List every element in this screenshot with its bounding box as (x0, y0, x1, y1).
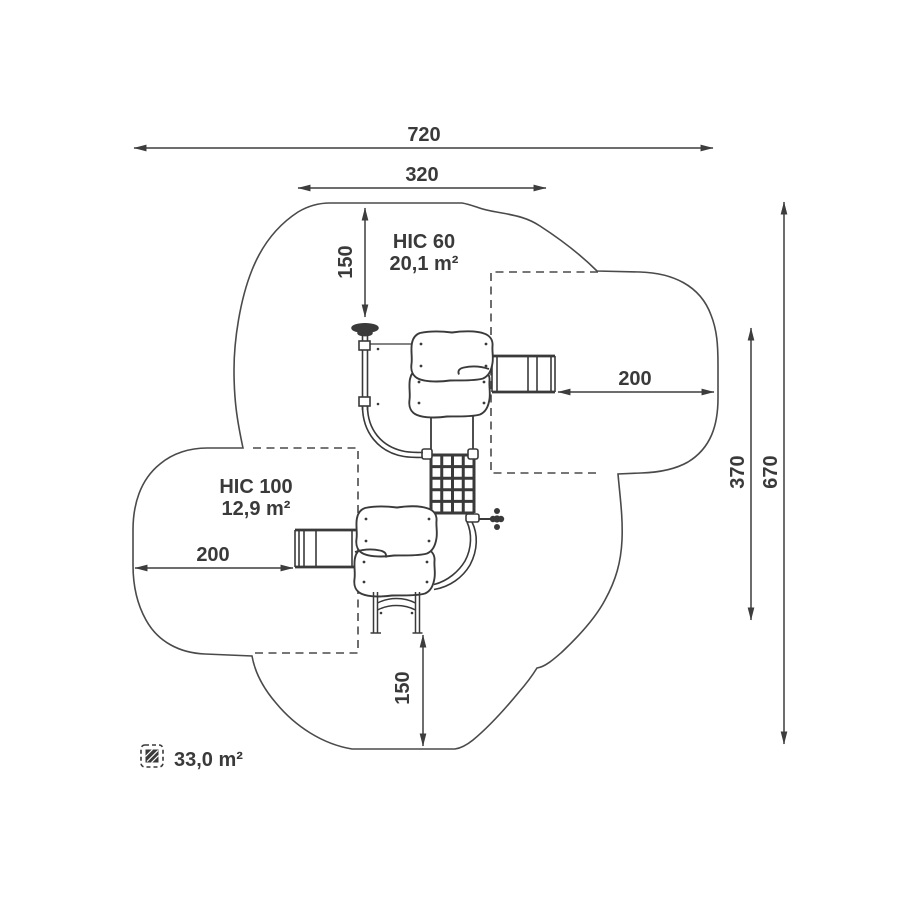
hic100-area: 12,9 m² (222, 498, 291, 520)
tower-net-posts (431, 416, 473, 450)
playground-plan-drawing: 720 320 150 200 370 670 200 150 HIC 60 2… (0, 0, 900, 900)
dim-label-left-clearance: 200 (196, 544, 229, 566)
dim-label-total-height: 670 (760, 455, 782, 488)
play-structure (295, 324, 555, 633)
hic60-label: HIC 60 (393, 231, 455, 253)
dim-label-bottom-clearance: 150 (392, 671, 414, 704)
technical-drawing-page: 720 320 150 200 370 670 200 150 HIC 60 2… (0, 0, 900, 900)
slide-exit (371, 592, 423, 633)
hic60-zone-boundary (491, 272, 601, 473)
hic100-label: HIC 100 (219, 476, 292, 498)
lower-tower (354, 506, 437, 596)
steering-wheel (490, 508, 504, 530)
dim-label-upper-zone-width: 320 (405, 164, 438, 186)
dim-label-right-clearance: 200 (618, 368, 651, 390)
hic60-area: 20,1 m² (390, 253, 459, 275)
upper-tower (409, 331, 493, 417)
dim-label-top-clearance: 150 (335, 245, 357, 278)
safety-area-icon (141, 745, 163, 767)
dimension-arrows (134, 148, 784, 746)
dim-label-zone-height: 370 (727, 455, 749, 488)
climbing-net (431, 455, 474, 513)
upper-tower-panel-top (411, 331, 493, 381)
dim-label-total-width: 720 (407, 124, 440, 146)
lower-stairs (295, 530, 358, 567)
upper-stairs (492, 356, 555, 392)
hic-zone-boundaries (250, 272, 601, 653)
pole-cap-base (358, 330, 372, 335)
safety-area-total-label: 33,0 m² (174, 749, 243, 771)
safety-area-legend: 33,0 m² (141, 745, 243, 771)
